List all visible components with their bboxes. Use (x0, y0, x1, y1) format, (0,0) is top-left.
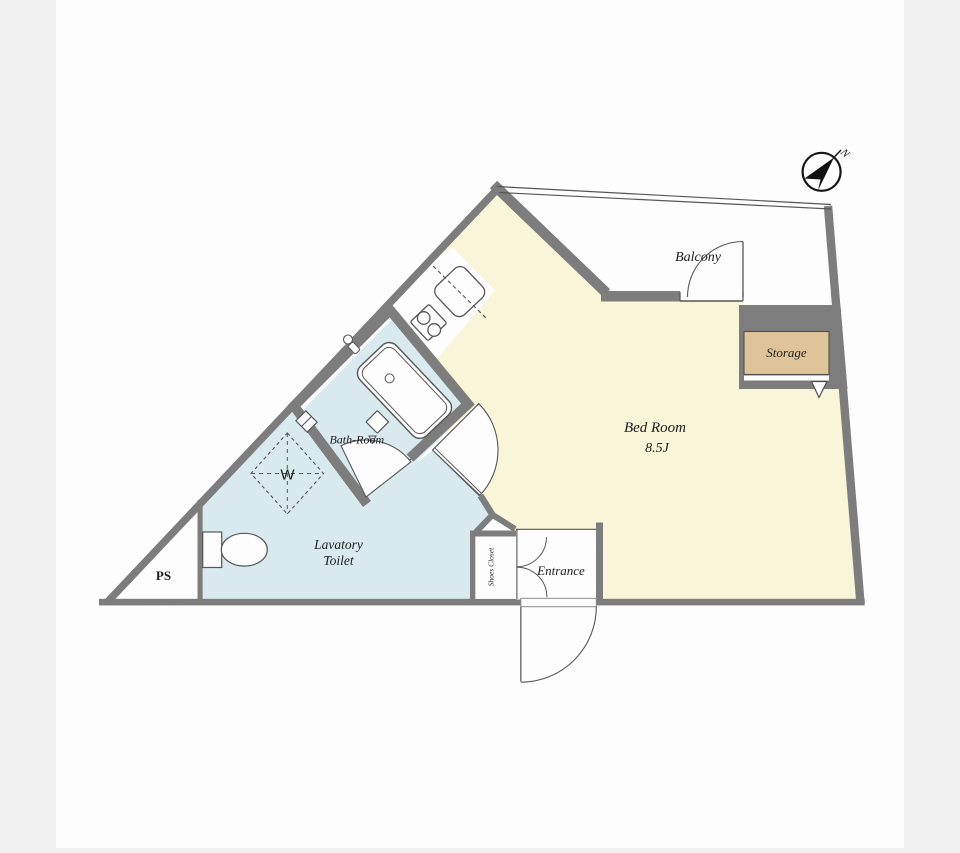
svg-text:Bed Room: Bed Room (624, 420, 686, 436)
svg-text:Lavatory: Lavatory (313, 537, 363, 552)
svg-text:8.5J: 8.5J (645, 441, 670, 456)
svg-text:PS: PS (156, 568, 171, 583)
svg-text:Storage: Storage (766, 345, 807, 360)
svg-text:W: W (280, 467, 295, 484)
svg-text:Shoes Closet: Shoes Closet (487, 547, 496, 586)
svg-text:Entrance: Entrance (536, 563, 585, 578)
svg-text:Bath-Room: Bath-Room (329, 433, 384, 447)
svg-text:Toilet: Toilet (323, 553, 355, 568)
svg-text:Balcony: Balcony (675, 250, 722, 265)
